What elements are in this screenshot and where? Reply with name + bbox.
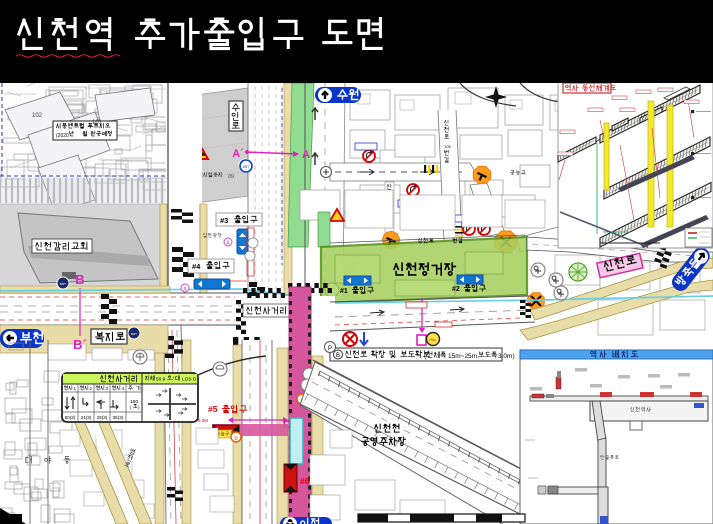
svg-text:35(3): 35(3) xyxy=(113,415,124,420)
svg-text:4: 4 xyxy=(122,386,125,391)
svg-text:BRT: BRT xyxy=(131,332,137,336)
svg-text:101: 101 xyxy=(92,120,103,126)
svg-text:#3: #3 xyxy=(220,216,228,225)
svg-text:#5: #5 xyxy=(208,404,218,414)
svg-text:#1: #1 xyxy=(340,288,348,295)
svg-text:(B): (B) xyxy=(228,174,235,179)
svg-text:A: A xyxy=(302,149,310,161)
svg-text:29(3): 29(3) xyxy=(97,415,108,420)
svg-text:50.9: 50.9 xyxy=(156,377,166,383)
svg-text:LOS D: LOS D xyxy=(182,377,197,383)
svg-text:(2020: (2020 xyxy=(56,133,69,139)
svg-text:B: B xyxy=(75,272,84,287)
svg-text:P: P xyxy=(328,346,332,352)
svg-text:6.3M: 6.3M xyxy=(198,418,208,423)
svg-text:3.0m): 3.0m) xyxy=(498,353,515,360)
svg-text:B: B xyxy=(336,353,340,359)
svg-text:BRT: BRT xyxy=(60,282,66,286)
svg-text:B´: B´ xyxy=(73,337,87,352)
svg-text:160: 160 xyxy=(130,399,138,405)
svg-text:60(3): 60(3) xyxy=(65,415,76,420)
svg-text:BRT: BRT xyxy=(243,165,249,169)
svg-text:#4: #4 xyxy=(192,262,201,271)
svg-text:3: 3 xyxy=(106,386,109,391)
svg-text:HILL: HILL xyxy=(429,338,436,342)
svg-text:#6: #6 xyxy=(300,476,310,486)
svg-text:#2: #2 xyxy=(452,286,460,293)
svg-text:A´: A´ xyxy=(232,148,244,160)
svg-text:24(3): 24(3) xyxy=(81,415,92,420)
svg-text:15m~25m,: 15m~25m, xyxy=(448,353,479,360)
svg-text:100: 100 xyxy=(444,144,451,149)
svg-text:102: 102 xyxy=(32,113,43,119)
svg-text:1: 1 xyxy=(74,386,77,391)
svg-text:2: 2 xyxy=(90,386,93,391)
